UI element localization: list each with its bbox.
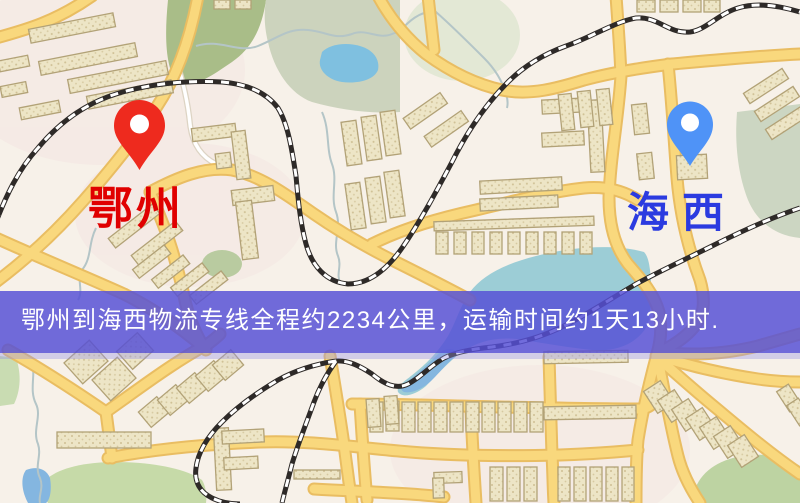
route-banner-soft-edge: [0, 353, 800, 359]
pond-southwest: [22, 468, 50, 503]
map-screenshot: 鄂州 海西 鄂州到海西物流专线全程约2234公里，运输时间约1天13小时.: [0, 0, 800, 503]
route-info-banner: 鄂州到海西物流专线全程约2234公里，运输时间约1天13小时.: [0, 291, 800, 353]
route-info-text: 鄂州到海西物流专线全程约2234公里，运输时间约1天13小时.: [21, 291, 720, 353]
destination-place-label: 海西: [627, 179, 737, 240]
map-canvas[interactable]: [0, 0, 800, 503]
origin-place-label: 鄂州: [88, 172, 184, 237]
